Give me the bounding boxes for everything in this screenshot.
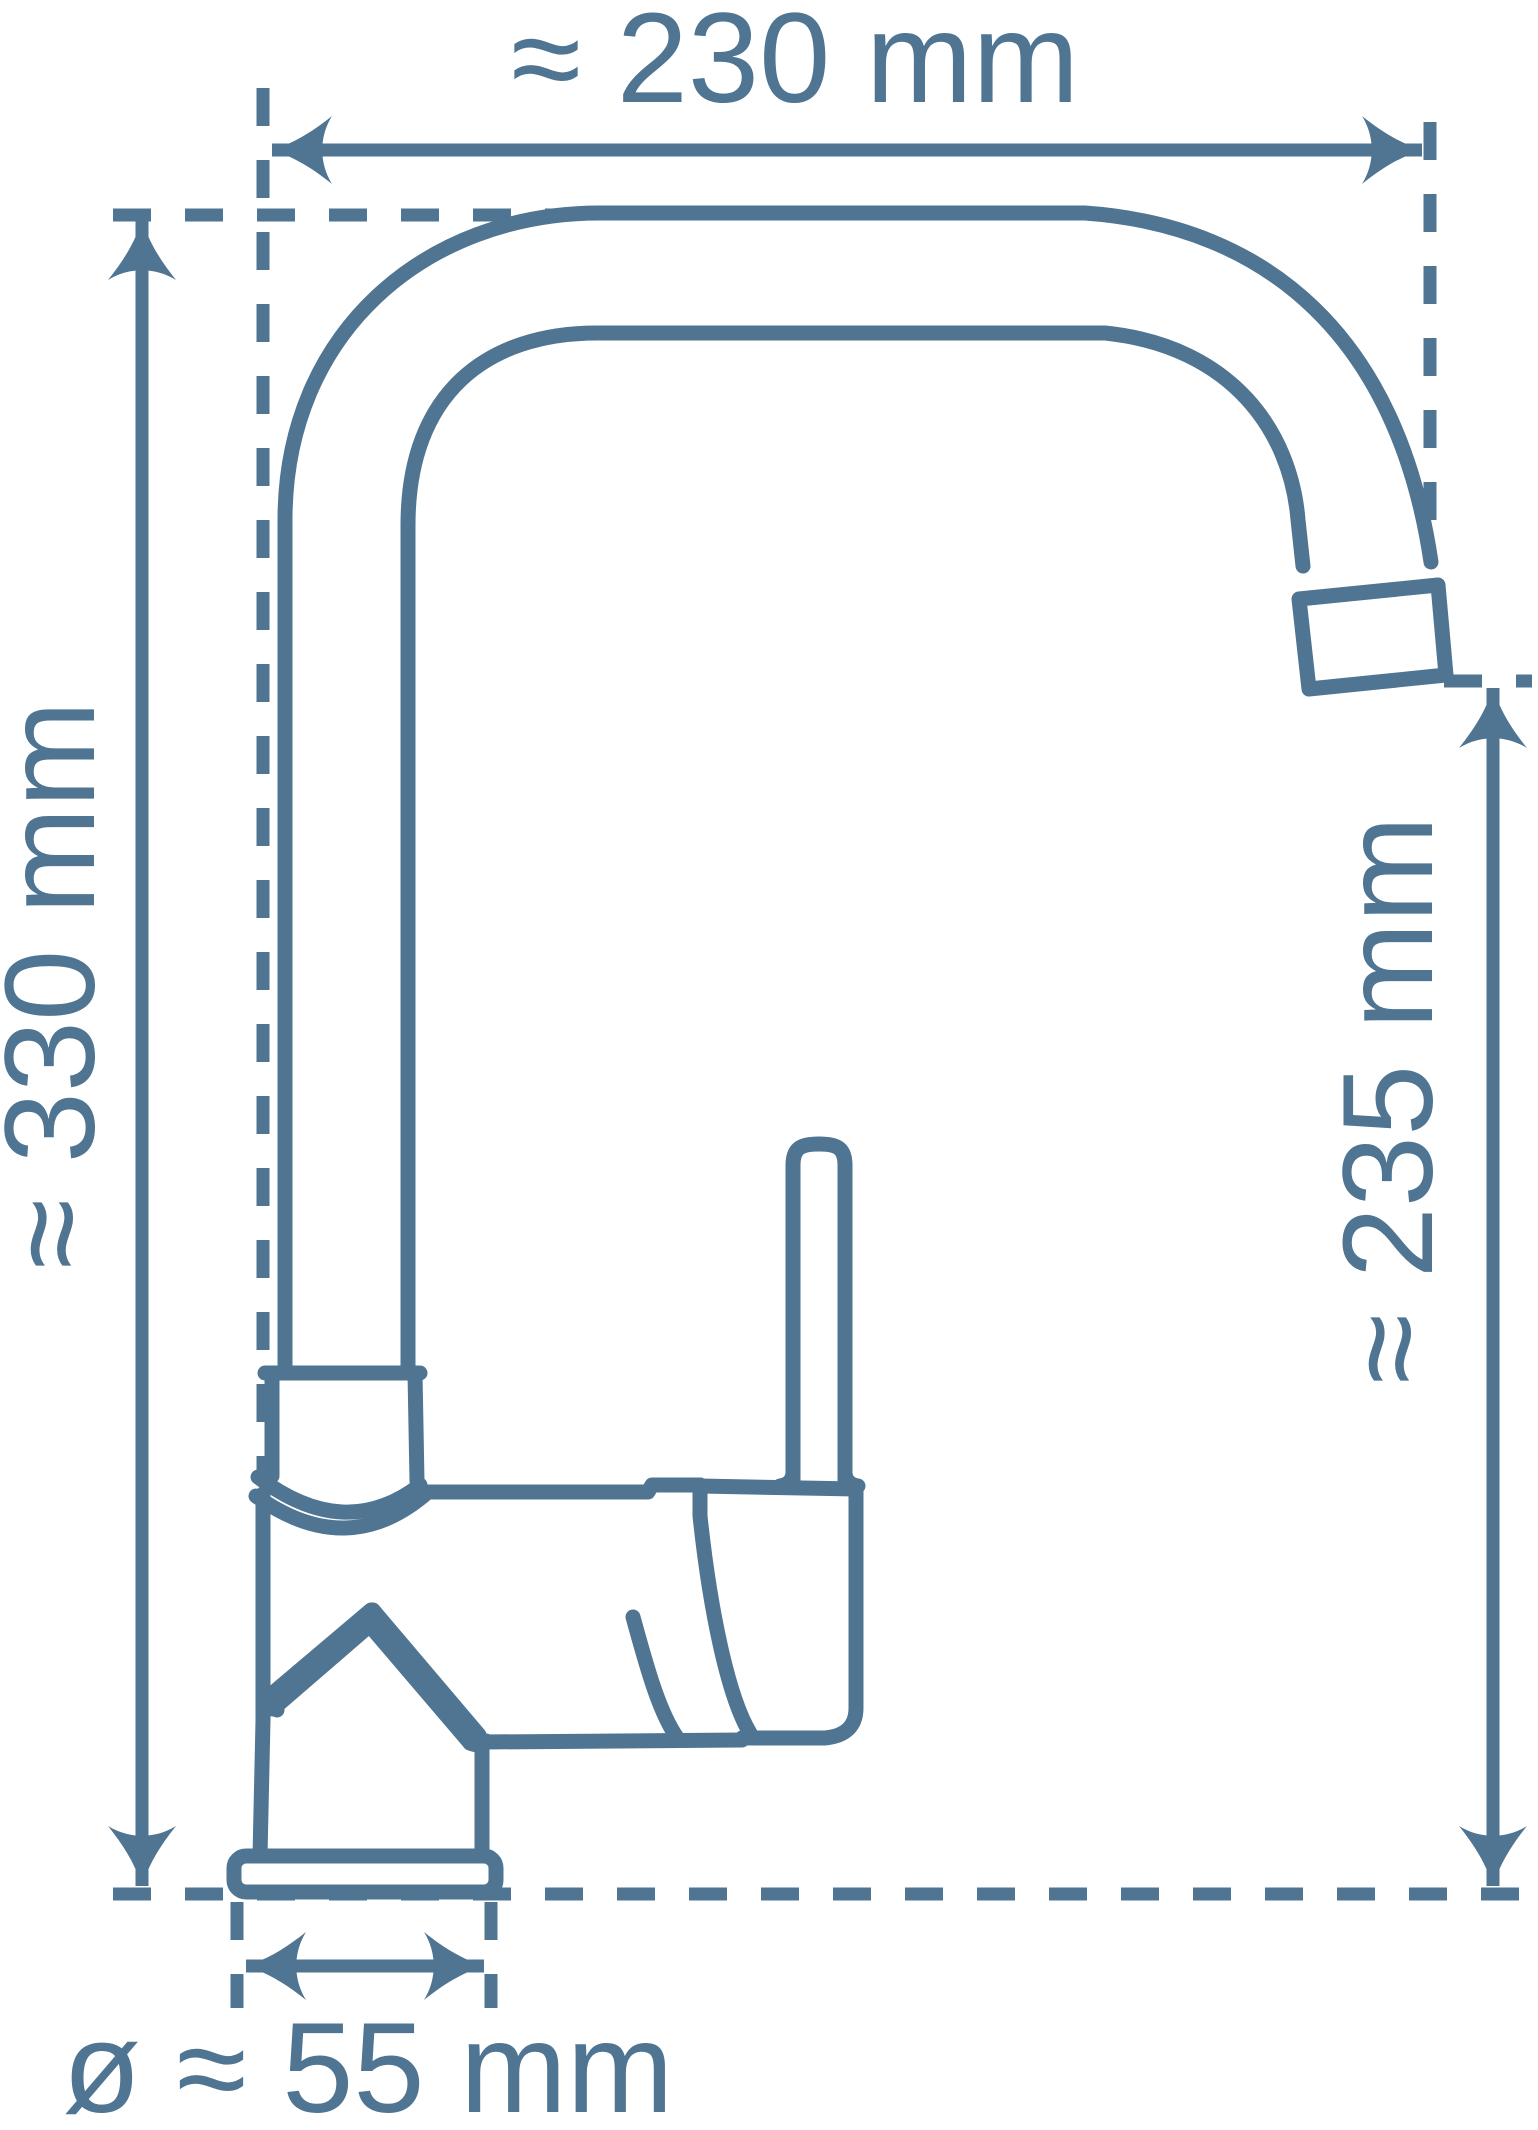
dim-spout-height-label: ≈ 235 mm bbox=[1317, 816, 1460, 1384]
handle-lever-flare-left bbox=[780, 1473, 793, 1486]
faucet-outline bbox=[234, 213, 1446, 1892]
handle-block-bottom-right bbox=[742, 1490, 856, 1738]
base-flange bbox=[234, 1856, 496, 1892]
dim-width-label: ≈ 230 mm bbox=[511, 0, 1079, 130]
v-notch-left-outer bbox=[267, 1610, 371, 1698]
body-top-edge bbox=[428, 1485, 700, 1492]
spout-inner-edge bbox=[408, 333, 1303, 1373]
v-notch-left-inner bbox=[273, 1620, 376, 1709]
dim-base-diameter-label: ø ≈ 55 mm bbox=[63, 1997, 674, 2130]
faucet-dimension-diagram: ≈ 230 mm ≈ 330 mm ≈ 235 mm ø ≈ 55 mm bbox=[0, 0, 1538, 2130]
collar-right bbox=[415, 1373, 417, 1481]
body-inner-line bbox=[633, 1617, 678, 1739]
body-bottom-edge bbox=[484, 1740, 742, 1742]
cone-left-edge bbox=[260, 1494, 263, 1856]
spout-aerator bbox=[1299, 585, 1446, 689]
handle-lever-flare-right bbox=[845, 1473, 858, 1486]
dimension-lines bbox=[108, 116, 1527, 2000]
handle-block-left-cut bbox=[700, 1485, 750, 1733]
dimension-labels: ≈ 230 mm ≈ 330 mm ≈ 235 mm ø ≈ 55 mm bbox=[0, 0, 1460, 2130]
v-notch-right-inner bbox=[365, 1620, 470, 1743]
handle-lever-rod bbox=[793, 1144, 845, 1483]
dim-total-height-label: ≈ 330 mm bbox=[0, 701, 122, 1269]
v-notch-right-foot bbox=[470, 1741, 486, 1745]
diagram-canvas: ≈ 230 mm ≈ 330 mm ≈ 235 mm ø ≈ 55 mm bbox=[0, 0, 1538, 2130]
v-notch-right-outer bbox=[373, 1610, 479, 1735]
